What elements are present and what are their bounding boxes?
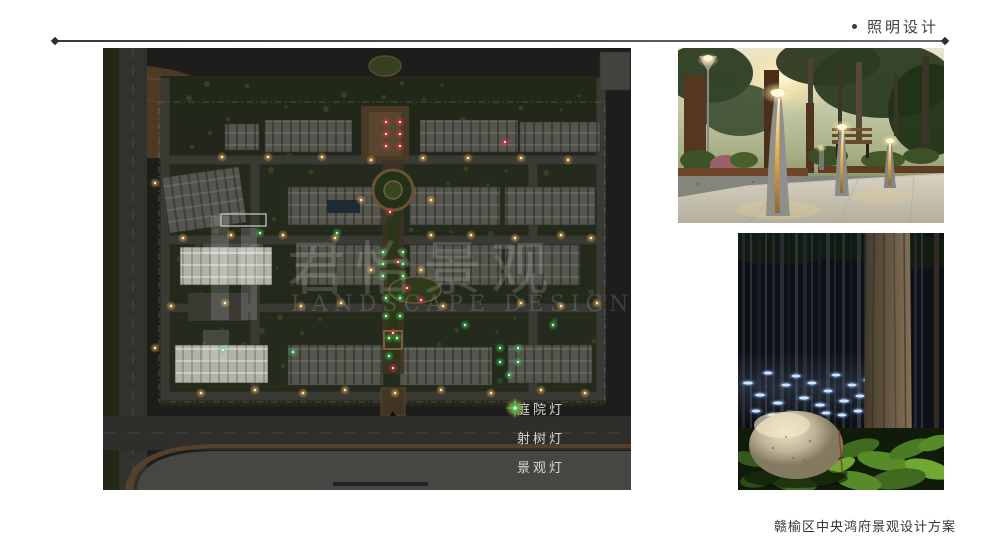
lighting-legend: 庭院灯 射树灯 景观灯 <box>505 398 565 476</box>
legend-item-tree: 射树灯 <box>505 427 565 447</box>
page-title: 照明设计 <box>867 16 939 37</box>
reference-photo-bollard-lights <box>678 48 944 223</box>
project-caption: 赣榆区中央鸿府景观设计方案 <box>774 516 956 535</box>
landscape-light-icon <box>505 398 525 418</box>
title-block: 照明设计 <box>852 16 939 37</box>
forest-photo-art <box>738 233 944 490</box>
slide-page: 照明设计 <box>0 0 984 554</box>
bullet-icon <box>852 24 857 29</box>
reference-photo-forest-lights <box>738 233 944 490</box>
legend-label: 景观灯 <box>517 457 565 476</box>
legend-item-landscape: 景观灯 <box>505 456 565 476</box>
bollard-photo-art <box>678 48 944 223</box>
legend-label: 射树灯 <box>517 428 565 447</box>
site-plan-image: 君怡景观 LANDSCAPE DESIGN 庭院灯 射树灯 <box>103 48 631 490</box>
header-divider <box>55 40 945 42</box>
